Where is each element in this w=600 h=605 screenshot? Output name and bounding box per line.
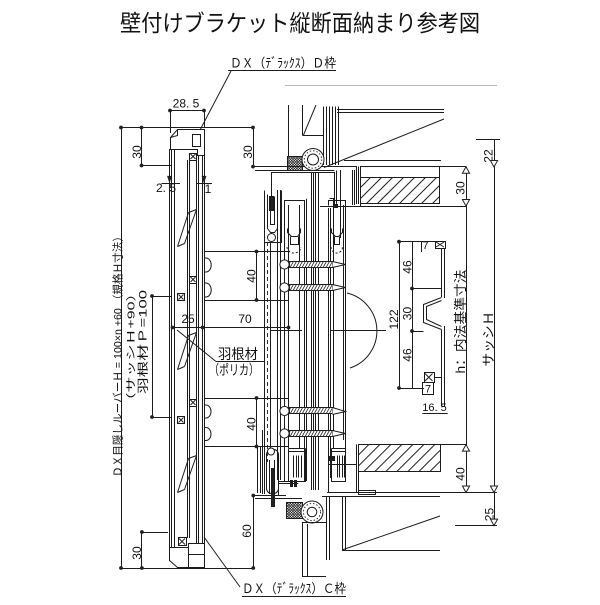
svg-text:16. 5: 16. 5 (422, 402, 446, 414)
svg-text:25: 25 (181, 312, 195, 326)
svg-text:28. 5: 28. 5 (173, 97, 200, 111)
svg-text:羽根材: 羽根材 (218, 346, 258, 362)
svg-text:40: 40 (454, 467, 468, 481)
svg-text:122: 122 (387, 309, 401, 329)
svg-text:（ポリカ）: （ポリカ） (209, 362, 259, 378)
svg-text:30: 30 (241, 145, 255, 159)
svg-text:羽根材Ｐ=100: 羽根材Ｐ=100 (136, 290, 150, 394)
svg-text:60: 60 (240, 524, 254, 538)
svg-text:ＤＸ（ﾃﾞﾗｯｸｽ）Ｄ枠: ＤＸ（ﾃﾞﾗｯｸｽ）Ｄ枠 (230, 56, 336, 71)
svg-text:30: 30 (454, 181, 468, 195)
svg-text:ＤＸ（ﾃﾞﾗｯｸｽ）Ｃ枠: ＤＸ（ﾃﾞﾗｯｸｽ）Ｃ枠 (242, 581, 346, 596)
svg-text:1: 1 (205, 182, 212, 196)
svg-text:h：内法基準寸法: h：内法基準寸法 (453, 270, 468, 374)
svg-text:壁付けブラケット縦断面納まり参考図: 壁付けブラケット縦断面納まり参考図 (120, 10, 480, 36)
svg-text:（サッシＨ+90）: （サッシＨ+90） (126, 286, 138, 409)
svg-text:サッシＨ: サッシＨ (481, 312, 496, 367)
svg-text:70: 70 (238, 312, 252, 326)
svg-text:ＤＸ目隠しルーバーＨ = 100×n +60 （規格Ｈ寸法）: ＤＸ目隠しルーバーＨ = 100×n +60 （規格Ｈ寸法） (111, 231, 125, 477)
svg-text:7: 7 (425, 384, 431, 396)
